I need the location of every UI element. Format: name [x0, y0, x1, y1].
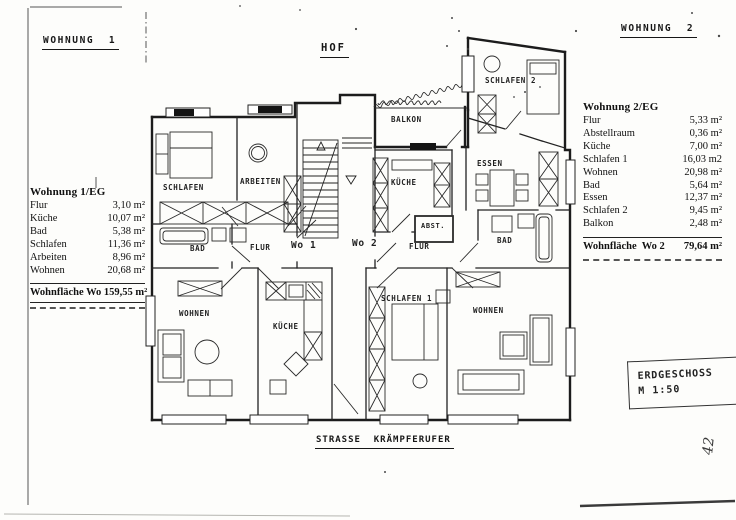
stool-icon	[413, 374, 427, 388]
room-label-balkon: BALKON	[391, 116, 422, 124]
room-area: 2,48 m²	[690, 218, 722, 231]
room-name: Abstellraum	[583, 128, 635, 141]
room-area: 7,00 m²	[690, 141, 722, 154]
entry-direction-arrow	[346, 176, 356, 184]
table-row: Schlafen11,36 m²	[30, 239, 145, 252]
round-table-icon	[484, 56, 500, 72]
table-row: Küche7,00 m²	[583, 141, 722, 154]
area-table-apartment2: Wohnung 2/EG Flur5,33 m²Abstellraum0,36 …	[583, 101, 722, 261]
kitchen-counter-icon	[266, 282, 322, 394]
sofa-icon	[158, 330, 184, 382]
room-label-bad-wo2: BAD	[497, 237, 512, 245]
sofa-icon	[458, 370, 524, 394]
wardrobe-icon	[160, 202, 288, 224]
room-area: 9,45 m²	[690, 205, 722, 218]
room-label-schlafen1-wo2: SCHLAFEN 1	[381, 295, 432, 303]
bed-icon	[527, 60, 559, 114]
room-area: 8,96 m²	[113, 252, 145, 265]
dining-table-icon	[476, 170, 528, 206]
room-area: 20,98 m²	[684, 167, 722, 180]
table2-total-row: Wohnfläche Wo 2 79,64 m²	[583, 237, 722, 255]
room-area: 20,68 m²	[107, 265, 145, 278]
wardrobe-icon	[456, 272, 500, 287]
square-table-icon	[500, 332, 527, 359]
room-name: Schlafen 2	[583, 205, 628, 218]
balcony-railing	[374, 84, 467, 108]
room-label-flur-wo2: FLUR	[409, 243, 429, 251]
bathtub-icon	[160, 228, 246, 244]
room-name: Arbeiten	[30, 252, 67, 265]
scanned-floorplan-page: WOHNUNG 1 WOHNUNG 2 HOF STRASSE KRÄMPFER…	[0, 0, 736, 520]
table-row: Abstellraum0,36 m²	[583, 128, 722, 141]
room-name: Flur	[30, 200, 48, 213]
room-name: Essen	[583, 192, 608, 205]
room-label-kueche-wo2: KÜCHE	[391, 179, 417, 187]
courtyard-label: HOF	[320, 43, 349, 58]
table-row: Balkon2,48 m²	[583, 218, 722, 231]
table-row: Essen12,37 m²	[583, 192, 722, 205]
table-row: Schlafen 116,03 m2	[583, 154, 722, 167]
wardrobe-icon	[369, 287, 385, 411]
scale-value: M 1:50	[638, 382, 736, 397]
entry-steps	[342, 138, 372, 148]
room-area: 0,36 m²	[690, 128, 722, 141]
table-row: Arbeiten8,96 m²	[30, 252, 145, 265]
kitchen-cabinet-icon	[373, 158, 450, 232]
room-name: Flur	[583, 115, 601, 128]
room-area: 3,10 m²	[113, 200, 145, 213]
table-row: Bad5,64 m²	[583, 180, 722, 193]
outer-walls	[152, 38, 570, 420]
inner-walls	[152, 103, 570, 420]
total-area: 59,55 m²	[109, 287, 147, 299]
room-label-arbeiten-wo1: ARBEITEN	[240, 178, 281, 186]
room-label-wo1-door: Wo 1	[291, 241, 316, 251]
table-row: Schlafen 29,45 m²	[583, 205, 722, 218]
room-name: Balkon	[583, 218, 613, 231]
dashed-rule	[583, 259, 722, 261]
rule	[30, 302, 145, 303]
chimney-blocks	[174, 106, 436, 150]
side-unit-icon	[530, 315, 552, 365]
handwritten-page-note: 42	[700, 436, 718, 455]
table1-rows: Flur3,10 m²Küche10,07 m²Bad5,38 m²Schlaf…	[30, 200, 145, 277]
room-label-flur-wo1: FLUR	[250, 244, 270, 252]
room-name: Wohnen	[583, 167, 618, 180]
wardrobe-icon	[178, 281, 222, 296]
table-row: Küche10,07 m²	[30, 213, 145, 226]
round-table-icon	[249, 144, 267, 162]
table-row: Flur5,33 m²	[583, 115, 722, 128]
room-name: Schlafen 1	[583, 154, 628, 167]
total-area: 79,64 m²	[684, 241, 722, 253]
title-block: ERDGESCHOSS M 1:50	[627, 357, 736, 410]
room-label-schlafen2-wo2: SCHLAFEN 2	[485, 77, 536, 85]
table2-title: Wohnung 2/EG	[583, 101, 722, 113]
bed-icon	[156, 132, 212, 178]
floor-name: ERDGESCHOSS	[637, 367, 736, 382]
table-row: Wohnen20,98 m²	[583, 167, 722, 180]
total-label: Wohnfläche Wo 2	[583, 241, 665, 253]
room-area: 11,36 m²	[108, 239, 145, 252]
room-label-wohnen-wo1: WOHNEN	[179, 310, 210, 318]
room-name: Schlafen	[30, 239, 67, 252]
table-row: Bad5,38 m²	[30, 226, 145, 239]
total-label: Wohnfläche Wo 1	[30, 287, 109, 299]
room-area: 16,03 m2	[682, 154, 722, 167]
room-area: 5,64 m²	[690, 180, 722, 193]
table1-total-row: Wohnfläche Wo 1 59,55 m²	[30, 283, 145, 301]
sideboard-icon	[188, 380, 232, 396]
shaft-icon	[539, 152, 558, 206]
room-label-kueche-wo1: KÜCHE	[273, 323, 299, 331]
room-area: 5,38 m²	[113, 226, 145, 239]
area-table-apartment1: Wohnung 1/EG Flur3,10 m²Küche10,07 m²Bad…	[30, 186, 145, 309]
room-name: Küche	[583, 141, 610, 154]
table-row: Wohnen20,68 m²	[30, 265, 145, 278]
street-label: STRASSE KRÄMPFERUFER	[315, 436, 454, 449]
room-name: Wohnen	[30, 265, 65, 278]
apartment1-heading: WOHNUNG 1	[42, 36, 119, 50]
room-name: Bad	[583, 180, 600, 193]
table-row: Flur3,10 m²	[30, 200, 145, 213]
room-label-essen-wo2: ESSEN	[477, 160, 503, 168]
room-label-abst-wo2: ABST.	[421, 223, 445, 230]
room-name: Küche	[30, 213, 57, 226]
room-area: 10,07 m²	[107, 213, 145, 226]
apartment2-heading: WOHNUNG 2	[620, 24, 697, 38]
room-area: 5,33 m²	[690, 115, 722, 128]
room-name: Bad	[30, 226, 47, 239]
round-table-icon	[195, 340, 219, 364]
room-label-schlafen-wo1: SCHLAFEN	[163, 184, 204, 192]
dashed-rule	[30, 307, 145, 309]
room-label-wo2-door: Wo 2	[352, 239, 377, 249]
table2-rows: Flur5,33 m²Abstellraum0,36 m²Küche7,00 m…	[583, 115, 722, 231]
wardrobe-icon	[478, 95, 496, 133]
table1-title: Wohnung 1/EG	[30, 186, 145, 198]
room-label-bad-wo1: BAD	[190, 245, 205, 253]
room-area: 12,37 m²	[684, 192, 722, 205]
furniture	[156, 56, 559, 411]
room-label-wohnen-wo2: WOHNEN	[473, 307, 504, 315]
